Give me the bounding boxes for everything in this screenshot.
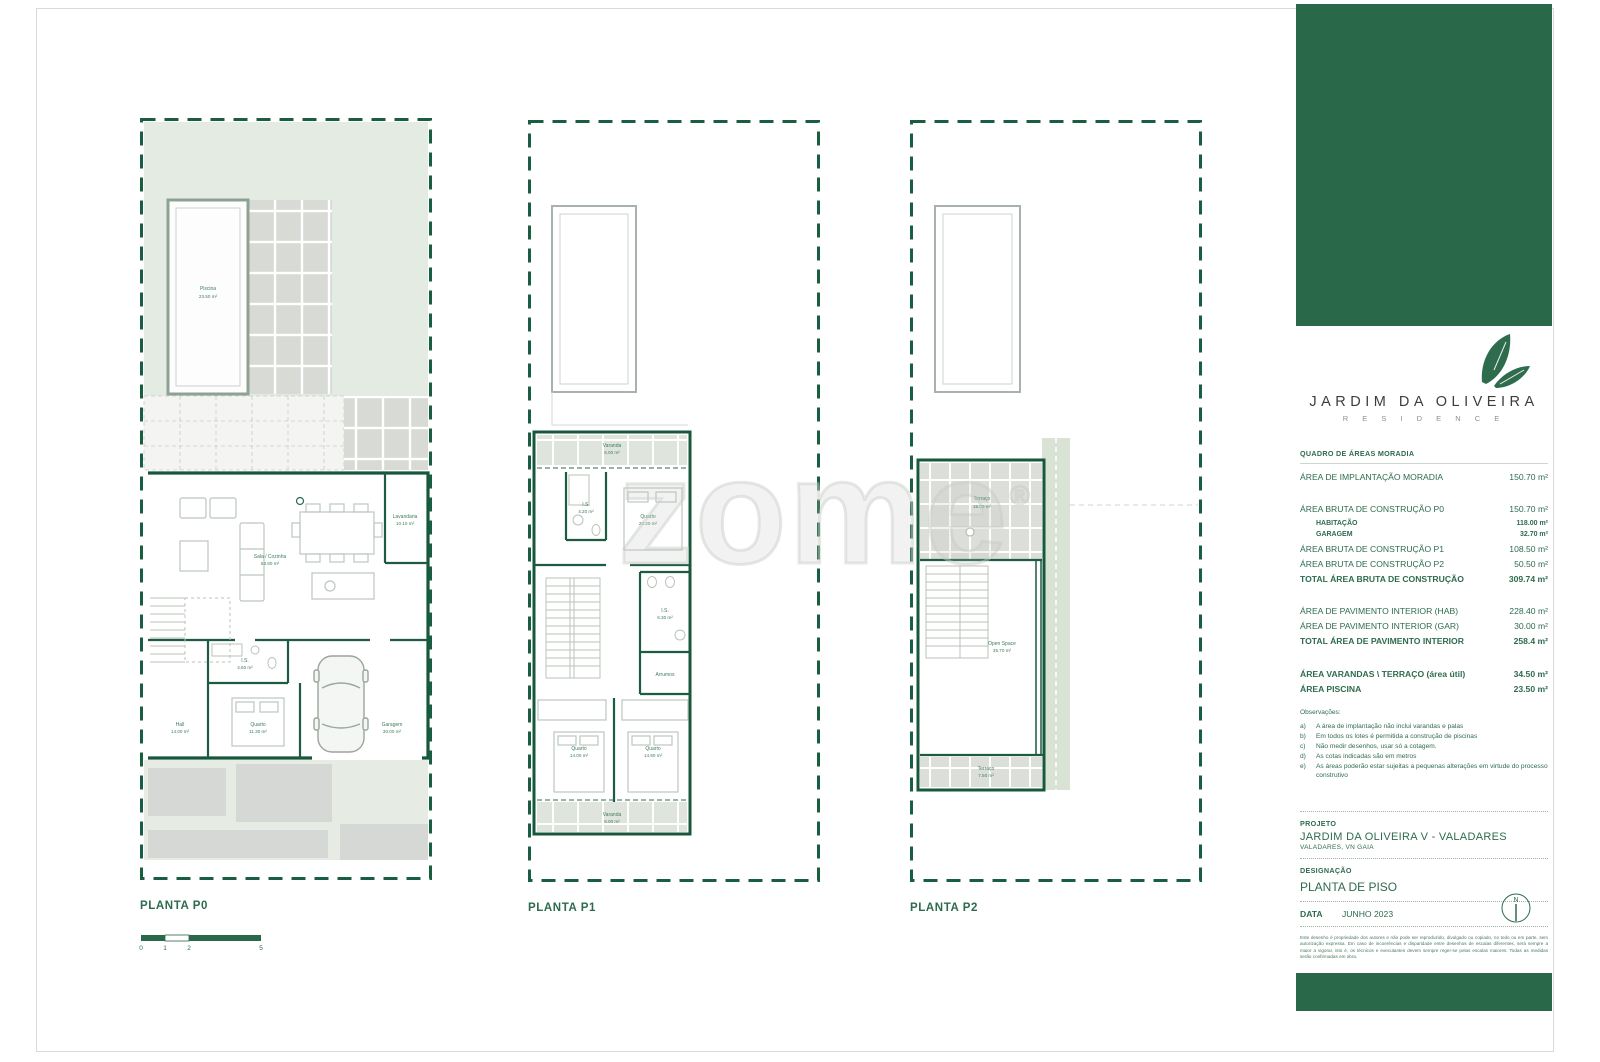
area-row-total: TOTAL ÁREA DE PAVIMENTO INTERIOR258.4 m² xyxy=(1300,636,1548,647)
scale-tick: 0 xyxy=(139,945,143,952)
room-label: Quarto xyxy=(250,722,266,728)
room-label: I.S. xyxy=(582,502,590,508)
observations-title: Observações: xyxy=(1300,709,1548,716)
area-row: ÁREA BRUTA DE CONSTRUÇÃO P250.50 m² xyxy=(1300,559,1548,570)
olive-leaves-icon xyxy=(1464,332,1534,390)
room-area-label: 20.20 m² xyxy=(639,521,658,526)
room-label: Piscina xyxy=(200,286,216,292)
header-green-block xyxy=(1296,4,1552,326)
disclaimer-text: Este desenho é propriedade dos autores e… xyxy=(1300,935,1548,961)
floor-plan-p2: Terraço 15.00 m² Open Space 35.70 m² Ter… xyxy=(910,120,1202,882)
observation-item: c)Não medir desenhos, usar só a cotagem. xyxy=(1300,743,1548,752)
room-area-label: 6.00 m² xyxy=(604,450,620,455)
terrace-bottom xyxy=(920,757,1042,787)
room-label: Garagem xyxy=(382,722,403,728)
area-row: ÁREA DE PAVIMENTO INTERIOR (GAR)30.00 m² xyxy=(1300,621,1548,632)
room-label: I.S. xyxy=(661,608,669,614)
room-area-label: 14.00 m² xyxy=(570,753,589,758)
room-area-label: 4.20 m² xyxy=(578,509,594,514)
designation-label: DESIGNAÇÃO xyxy=(1300,866,1548,875)
room-area-label: 7.50 m² xyxy=(978,773,994,778)
project-name: JARDIM DA OLIVEIRA V - VALADARES xyxy=(1300,831,1548,843)
room-label: Terraço xyxy=(974,496,991,502)
room-area-label: 15.00 m² xyxy=(973,504,992,509)
scale-tick: 1 xyxy=(163,945,167,952)
room-label: Open Space xyxy=(988,641,1016,647)
area-row: ÁREA DE PAVIMENTO INTERIOR (HAB)228.40 m… xyxy=(1300,606,1548,617)
room-area-label: 4.60 m² xyxy=(237,665,253,670)
date-label: DATA xyxy=(1300,909,1342,919)
drain xyxy=(966,528,974,536)
room-label: I.S. xyxy=(241,658,249,664)
logo-subtitle: R E S I D E N C E xyxy=(1343,414,1505,423)
observation-item: b)Em todos os lotes é permitida a constr… xyxy=(1300,733,1548,742)
area-row: ÁREA PISCINA23.50 m² xyxy=(1300,684,1548,695)
footer-green-block xyxy=(1296,973,1552,1011)
observations: Observações: a)A área de implantação não… xyxy=(1300,709,1548,780)
logo: JARDIM DA OLIVEIRA R E S I D E N C E xyxy=(1300,332,1548,423)
room-label: Quarto xyxy=(645,746,661,752)
areas-table-header: QUADRO DE ÁREAS MORADIA xyxy=(1300,449,1548,464)
room-area-label: 6.00 m² xyxy=(604,819,620,824)
scale-bar: 0 1 2 5 xyxy=(138,931,278,955)
room-area-label: 14.90 m² xyxy=(644,753,663,758)
room-area-label: 10.10 m² xyxy=(396,521,415,526)
project-location: VALADARES, VN GAIA xyxy=(1300,844,1548,851)
room-label: Hall xyxy=(176,722,185,728)
plan-title-p1: PLANTA P1 xyxy=(528,902,596,914)
area-row: ÁREA DE IMPLANTAÇÃO MORADIA150.70 m² xyxy=(1300,472,1548,483)
room-label: Quarto xyxy=(640,514,656,520)
void-outline xyxy=(935,206,1020,392)
plan-title-p2: PLANTA P2 xyxy=(910,902,978,914)
date-value: JUNHO 2023 xyxy=(1342,909,1393,919)
observation-item: e)As áreas poderão estar sujeitas a pequ… xyxy=(1300,763,1548,780)
separator xyxy=(1300,858,1548,859)
area-row: ÁREA BRUTA DE CONSTRUÇÃO P0150.70 m² xyxy=(1300,504,1548,515)
room-area-label: 14.00 m² xyxy=(171,729,190,734)
drawing-sheet: { "sidebar": { "logo": { "title": "JARDI… xyxy=(0,0,1600,1062)
car xyxy=(314,656,368,752)
title-block-sidebar: JARDIM DA OLIVEIRA R E S I D E N C E QUA… xyxy=(1300,332,1548,960)
floor-plan-p1: Varanda 6.00 m² I.S. 4.20 m² Quarto 20.2… xyxy=(528,120,820,882)
project-label: PROJETO xyxy=(1300,819,1548,828)
room-label: Arrumos xyxy=(656,672,675,678)
room-area-label: 35.70 m² xyxy=(993,648,1012,653)
observation-item: a)A área de implantação não inclui varan… xyxy=(1300,723,1548,732)
plan-title-p0: PLANTA P0 xyxy=(140,900,208,912)
pool-deck-tiles xyxy=(248,200,332,394)
logo-title: JARDIM DA OLIVEIRA xyxy=(1309,394,1538,410)
void-outline xyxy=(552,206,688,425)
patio-tiles xyxy=(144,396,344,470)
area-row-total: TOTAL ÁREA BRUTA DE CONSTRUÇÃO309.74 m² xyxy=(1300,574,1548,585)
area-row-sub: GARAGEM32.70 m² xyxy=(1300,530,1548,539)
observation-item: d)As cotas indicadas são em metros xyxy=(1300,753,1548,762)
room-area-label: 63.90 m² xyxy=(261,561,280,566)
scale-tick: 5 xyxy=(259,945,263,952)
area-row: ÁREA BRUTA DE CONSTRUÇÃO P1108.50 m² xyxy=(1300,544,1548,555)
room-label: Terraço xyxy=(978,766,995,772)
room-label: Lavandaria xyxy=(393,514,418,520)
floor-plan-p0: Piscina 23.50 m² xyxy=(140,118,432,880)
area-row: ÁREA VARANDAS \ TERRAÇO (área útil)34.50… xyxy=(1300,669,1548,680)
north-arrow-icon: N xyxy=(1498,890,1534,926)
area-row-sub: HABITAÇÃO118.00 m² xyxy=(1300,519,1548,528)
room-area-label: 30.00 m² xyxy=(383,729,402,734)
north-letter: N xyxy=(1513,897,1518,904)
patio-tiles-right xyxy=(344,396,428,470)
room-area-label: 11.30 m² xyxy=(249,729,267,734)
pool: Piscina 23.50 m² xyxy=(168,200,248,394)
room-area-label: 23.50 m² xyxy=(199,294,218,299)
room-area-label: 6.30 m² xyxy=(657,615,673,620)
room-label: Varanda xyxy=(603,443,622,449)
scale-tick: 2 xyxy=(187,945,191,952)
room-label: Varanda xyxy=(603,812,622,818)
separator xyxy=(1300,811,1548,812)
terrace-top xyxy=(920,463,1042,559)
room-label: Quarto xyxy=(571,746,587,752)
room-label: Sala / Cozinha xyxy=(254,554,287,560)
